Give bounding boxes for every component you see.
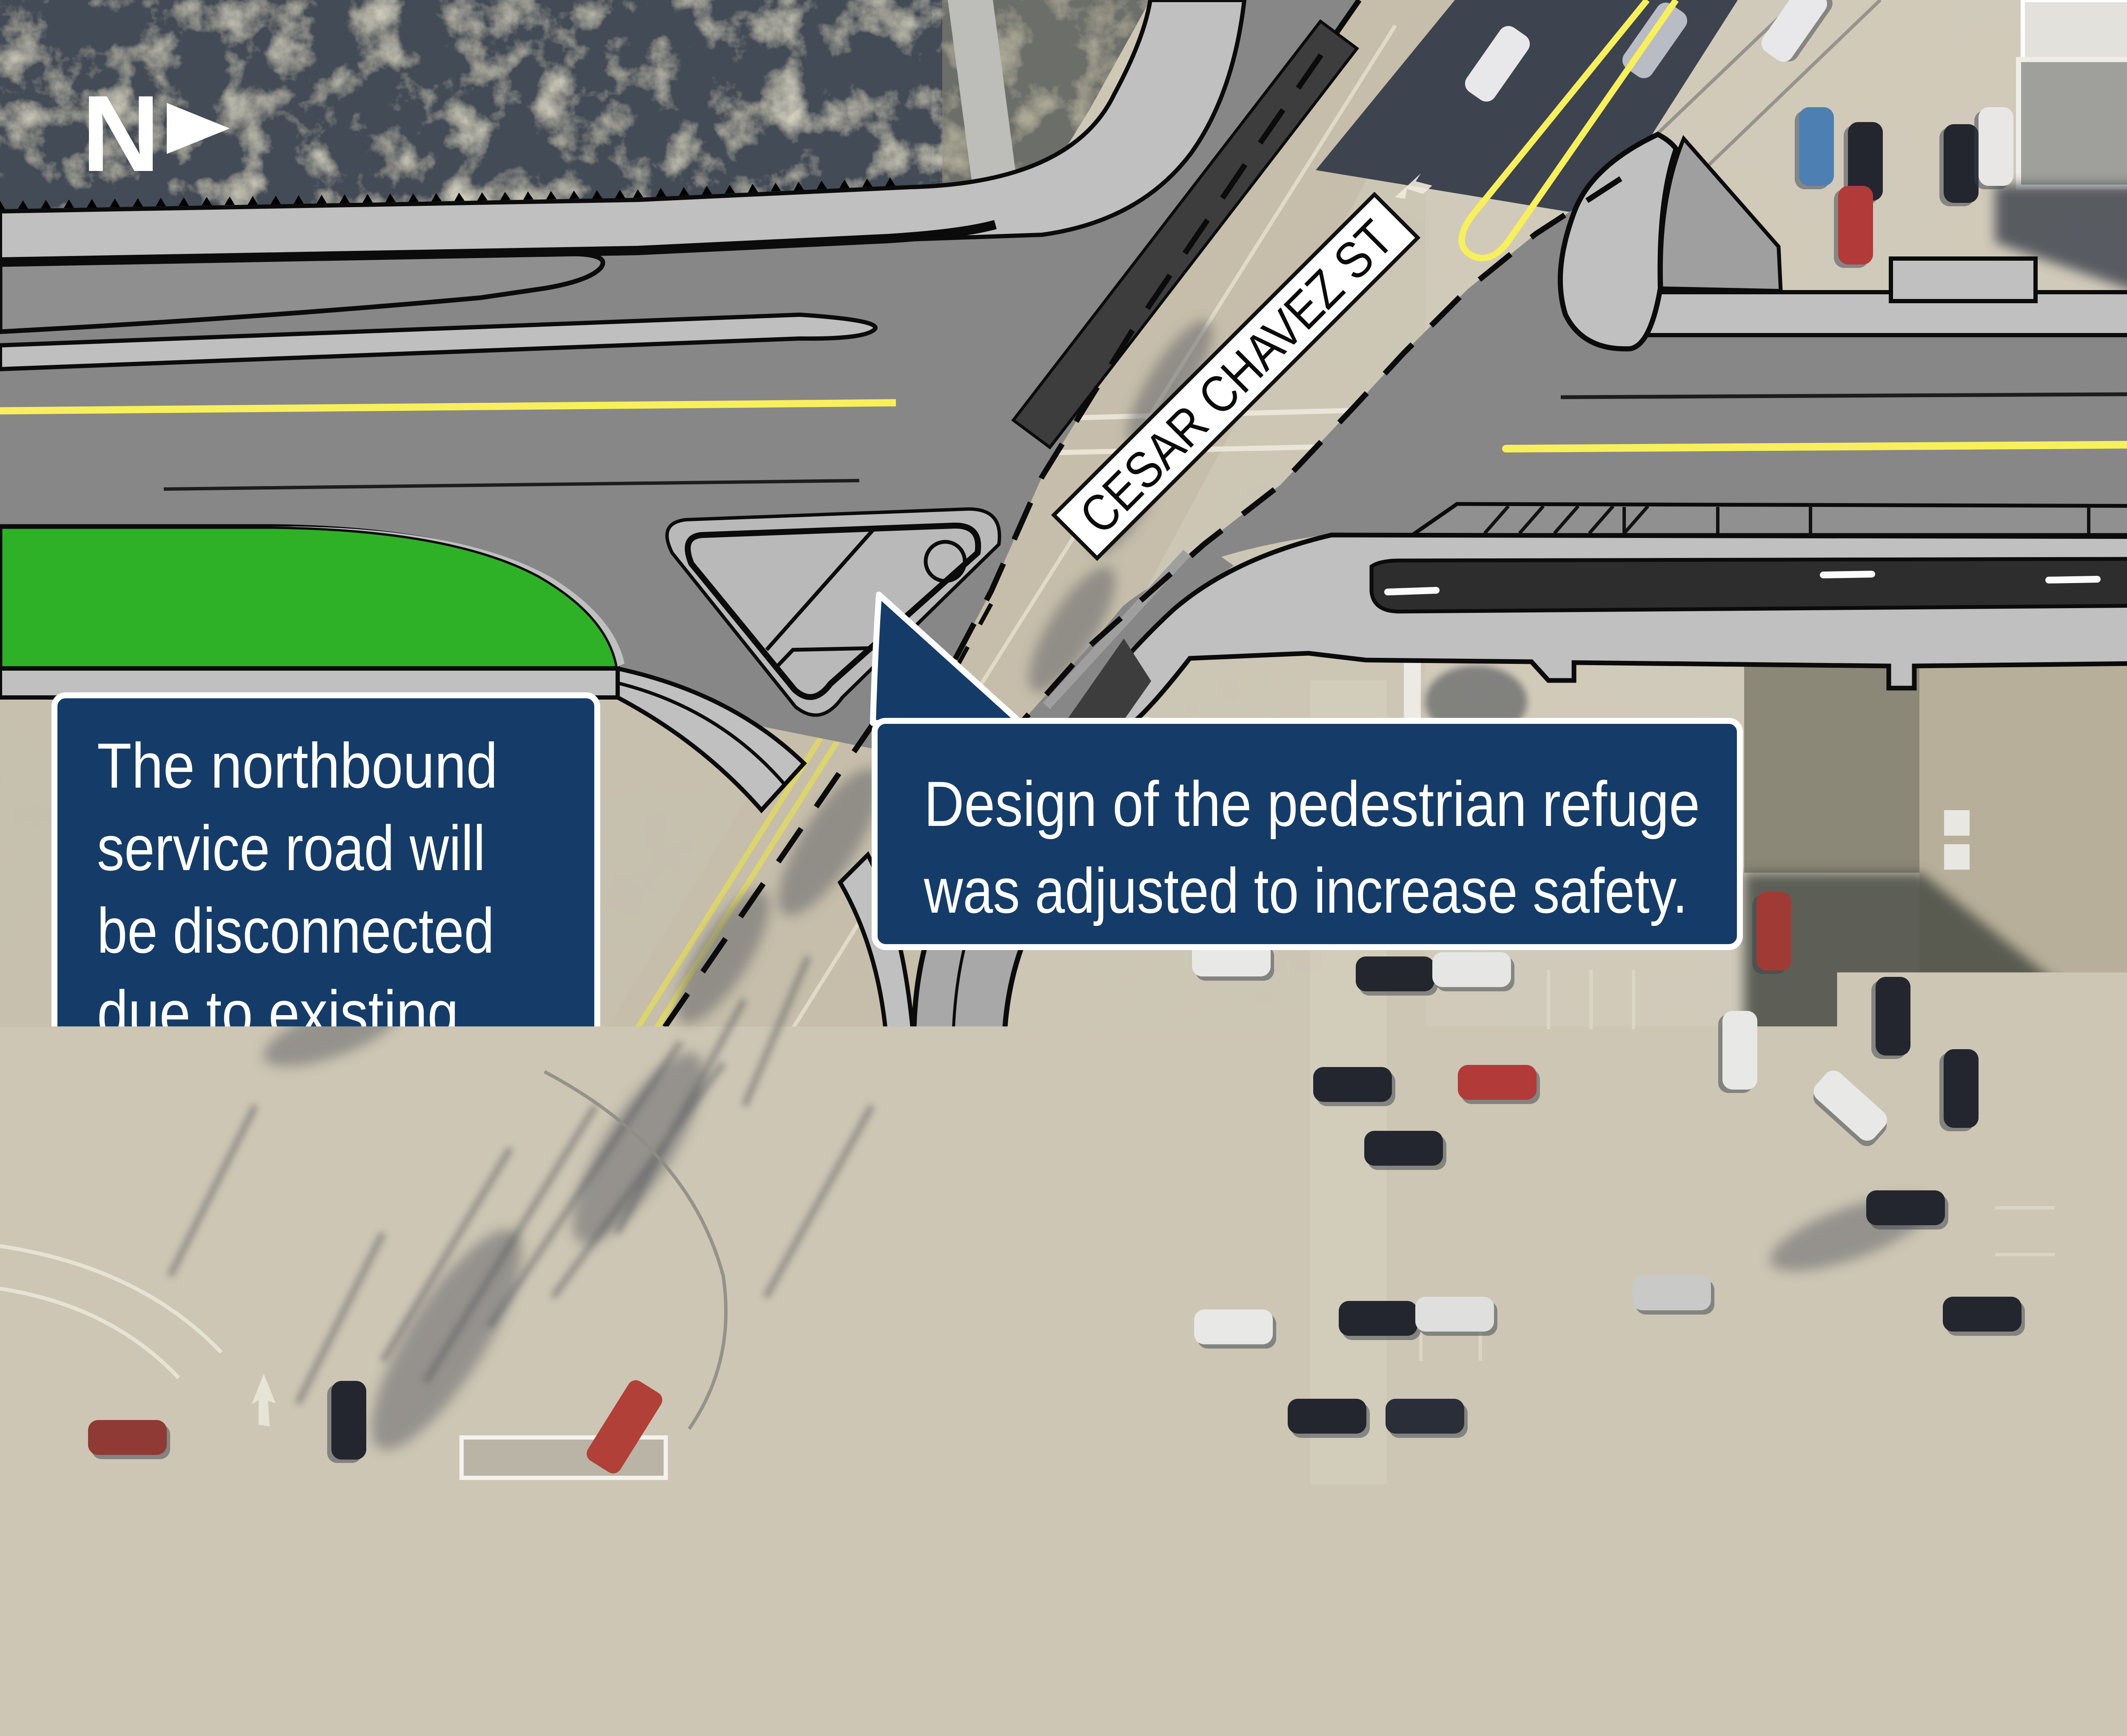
svg-text:safety problems at: safety problems at bbox=[97, 1060, 555, 1131]
svg-text:N: N bbox=[82, 73, 160, 194]
svg-text:information on the proposed de: information on the proposed design, plea… bbox=[78, 1595, 1899, 1668]
svg-text:due to existing: due to existing bbox=[97, 977, 459, 1049]
svg-text:This concept drawing is curren: This concept drawing is current as of Ap… bbox=[78, 1524, 2086, 1597]
svg-text:be disconnected: be disconnected bbox=[97, 895, 494, 966]
svg-text:Design of the pedestrian refug: Design of the pedestrian refuge bbox=[924, 768, 1700, 840]
svg-text:The northbound: The northbound bbox=[97, 730, 498, 801]
svg-text:was adjusted to increase safet: was adjusted to increase safety. bbox=[924, 855, 1688, 926]
svg-text:WINIFRED ST E: WINIFRED ST E bbox=[844, 1133, 901, 1461]
svg-text:St. intersection.: St. intersection. bbox=[97, 1225, 496, 1296]
svg-text:service road will: service road will bbox=[97, 812, 485, 884]
svg-text:the Cesar Chavez: the Cesar Chavez bbox=[97, 1142, 533, 1214]
